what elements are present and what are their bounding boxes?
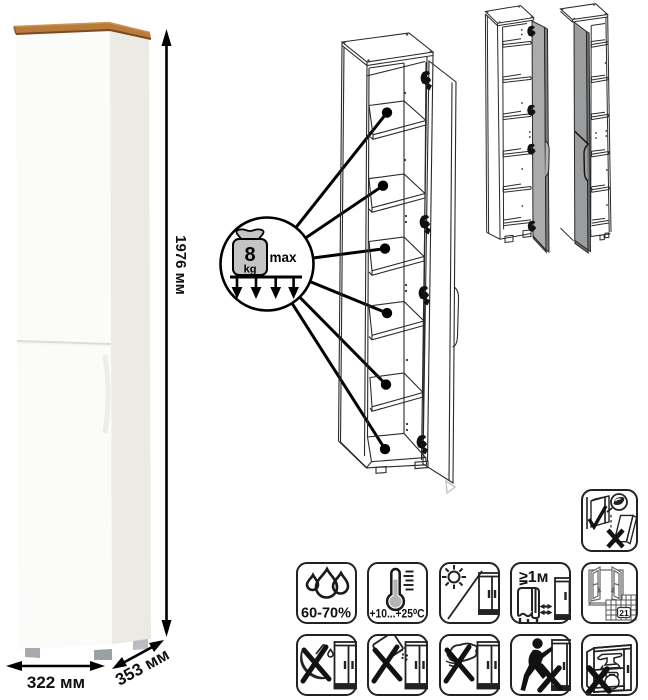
svg-text:21: 21 (619, 608, 629, 618)
svg-text:60-70%: 60-70% (301, 606, 351, 622)
svg-text:max: max (269, 250, 297, 265)
svg-text:+10...+25⁰C: +10...+25⁰C (370, 608, 425, 621)
svg-text:322 мм: 322 мм (27, 673, 85, 692)
svg-text:kg: kg (244, 264, 257, 276)
svg-text:1976 мм: 1976 мм (172, 235, 189, 295)
